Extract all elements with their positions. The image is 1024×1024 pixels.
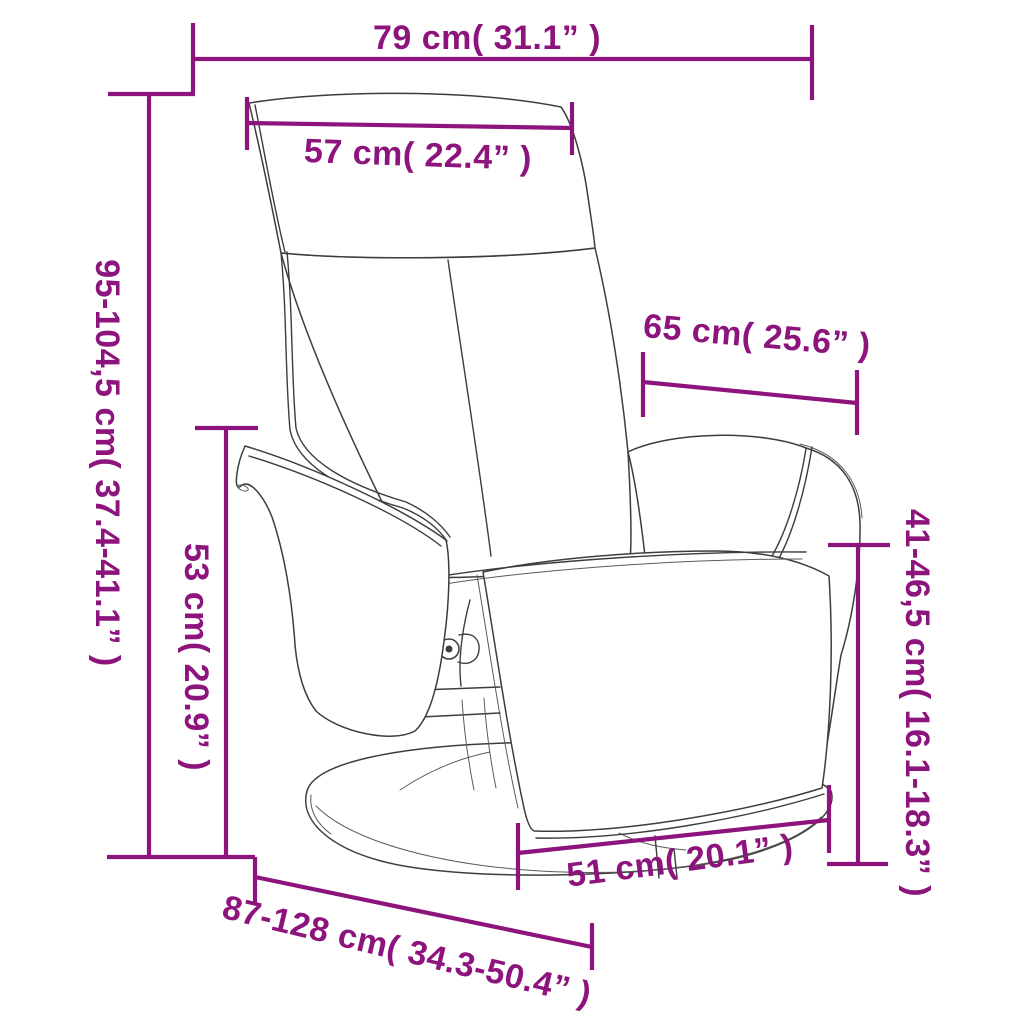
dim-backrest-width [643, 352, 857, 435]
dimension-diagram: 79 cm( 31.1” ) 57 cm( 22.4” ) 95-104,5 c… [0, 0, 1024, 1024]
overall-width-label: 79 cm( 31.1” ) [373, 19, 601, 57]
backrest-width-label: 65 cm( 25.6” ) [642, 307, 873, 365]
dim-backrest-width-line [643, 382, 857, 403]
overall-height-label: 95-104,5 cm( 37.4-41.1” ) [88, 259, 126, 667]
headrest [249, 93, 595, 257]
seat-height-label: 53 cm( 20.9” ) [177, 543, 215, 771]
diagram-canvas: 79 cm( 31.1” ) 57 cm( 22.4” ) 95-104,5 c… [0, 0, 1024, 1024]
armrest-height-label: 41-46,5 cm( 16.1-18.3” ) [898, 509, 936, 897]
headrest-width-label: 57 cm( 22.4” ) [303, 132, 532, 178]
chair-line-art [236, 93, 862, 878]
